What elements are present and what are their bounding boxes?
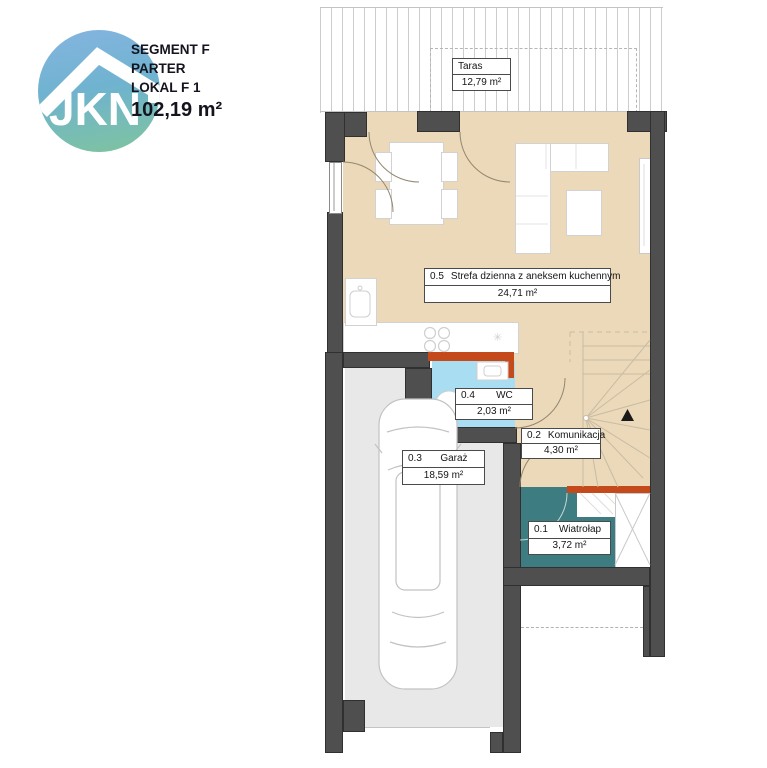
accent-wall-entry	[567, 486, 650, 493]
wall-entry-bottom	[503, 567, 650, 586]
room-name: Strefa dzienna z aneksem kuchennym	[451, 272, 621, 282]
dining-chair	[375, 152, 392, 182]
room-id: 0.1	[534, 525, 548, 535]
dining-chair	[441, 152, 458, 182]
wall-garage-top	[343, 352, 430, 368]
wall-left-garage	[325, 352, 343, 753]
label-taras: Taras 12,79 m²	[452, 58, 511, 91]
wall-right-lower-step	[643, 586, 650, 657]
room-area: 12,79 m²	[462, 78, 501, 88]
room-name: Taras	[458, 62, 505, 72]
room-area: 2,03 m²	[477, 407, 511, 417]
unit-header: SEGMENT F PARTER LOKAL F 1 102,19 m²	[131, 40, 222, 122]
sofa-left-section	[515, 143, 551, 254]
room-id: 0.3	[408, 454, 422, 464]
wall-garage-door-right	[490, 732, 503, 753]
segment-label: SEGMENT F	[131, 40, 222, 59]
room-hall-floor	[514, 352, 650, 487]
room-area: 18,59 m²	[424, 471, 463, 481]
porch-dashed-line	[521, 627, 643, 628]
wall-garage-wc	[405, 368, 432, 430]
wall-garage-right	[503, 443, 521, 753]
kitchen-counter	[343, 322, 519, 354]
label-komunikacja: 0.2Komunikacja 4,30 m²	[521, 428, 601, 459]
room-name: Garaż	[429, 454, 479, 464]
floor-label: PARTER	[131, 59, 222, 78]
room-name: Komunikacja	[548, 431, 605, 441]
room-id: 0.5	[430, 272, 444, 282]
label-garaz: 0.3Garaż 18,59 m²	[402, 450, 485, 485]
wall-right	[650, 111, 665, 657]
room-id: 0.4	[461, 391, 475, 401]
unit-label: LOKAL F 1	[131, 78, 222, 97]
wall-below-wc	[405, 427, 517, 443]
wall-top-left-leg	[325, 112, 345, 162]
terrace-edge-line	[320, 111, 663, 112]
room-id: 0.2	[527, 431, 541, 441]
entry-mat-area	[577, 493, 615, 517]
label-wiatrolap: 0.1Wiatrołap 3,72 m²	[528, 521, 611, 555]
label-living: 0.5Strefa dzienna z aneksem kuchennym 24…	[424, 268, 611, 303]
floorplan-page: ✳ Taras 1	[0, 0, 767, 768]
wall-top-middle-block	[417, 111, 460, 132]
room-name: Wiatrołap	[555, 525, 605, 535]
wall-garage-door-left	[343, 700, 365, 732]
garage-door-line	[365, 727, 490, 728]
dining-chair	[441, 189, 458, 219]
wall-left-upper	[327, 212, 343, 357]
entry-closet-box	[615, 493, 652, 569]
accent-wall-wc-side	[505, 352, 514, 378]
logo-text: JKN	[49, 82, 141, 136]
kitchen-sink-unit	[345, 278, 377, 326]
window-left	[329, 162, 342, 214]
coffee-table	[566, 190, 602, 236]
room-area: 4,30 m²	[544, 446, 578, 456]
total-area-label: 102,19 m²	[131, 99, 222, 122]
room-name: WC	[482, 391, 527, 401]
dining-chair	[375, 189, 392, 219]
label-wc: 0.4WC 2,03 m²	[455, 388, 533, 420]
dining-table	[389, 142, 444, 225]
accent-wall-wc-top	[428, 352, 514, 361]
room-area: 3,72 m²	[553, 541, 587, 551]
room-area: 24,71 m²	[498, 289, 537, 299]
